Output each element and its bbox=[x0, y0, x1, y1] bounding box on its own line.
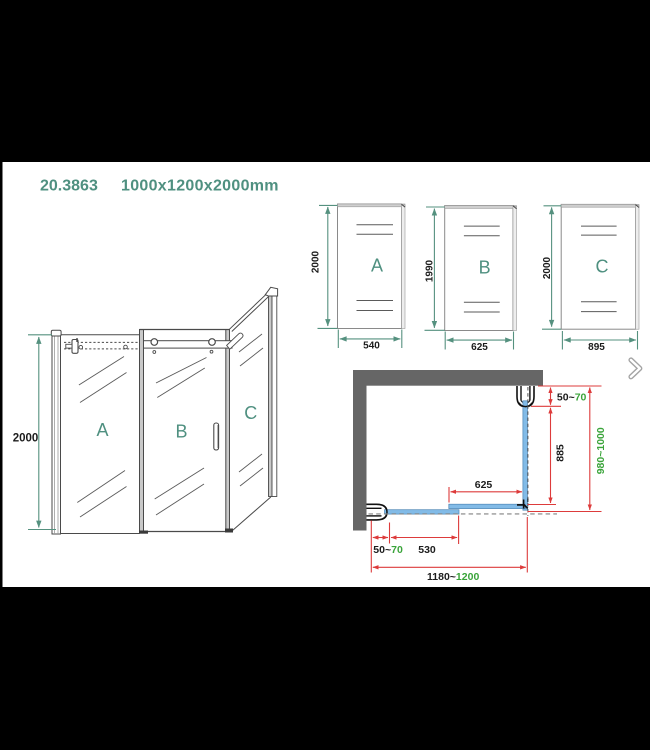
svg-text:B: B bbox=[175, 422, 187, 442]
svg-text:540: 540 bbox=[363, 341, 380, 352]
svg-text:50~70: 50~70 bbox=[557, 391, 587, 403]
svg-text:2000: 2000 bbox=[310, 250, 321, 273]
svg-text:B: B bbox=[479, 258, 491, 278]
svg-text:C: C bbox=[244, 403, 257, 423]
svg-text:20.3863: 20.3863 bbox=[40, 178, 98, 195]
svg-text:A: A bbox=[96, 420, 108, 440]
svg-text:1000x1200x2000mm: 1000x1200x2000mm bbox=[121, 178, 279, 195]
svg-text:980~1000: 980~1000 bbox=[595, 427, 607, 474]
svg-text:50~70: 50~70 bbox=[373, 544, 403, 556]
svg-text:1990: 1990 bbox=[425, 259, 436, 282]
svg-text:895: 895 bbox=[588, 342, 605, 353]
svg-text:2000: 2000 bbox=[13, 432, 39, 444]
svg-text:885: 885 bbox=[554, 444, 566, 462]
svg-text:2000: 2000 bbox=[542, 256, 553, 279]
svg-text:C: C bbox=[596, 257, 609, 277]
svg-text:530: 530 bbox=[418, 544, 436, 556]
svg-text:625: 625 bbox=[475, 479, 493, 491]
svg-text:A: A bbox=[371, 256, 383, 276]
svg-text:1180~1200: 1180~1200 bbox=[427, 571, 479, 583]
svg-text:625: 625 bbox=[471, 342, 488, 353]
